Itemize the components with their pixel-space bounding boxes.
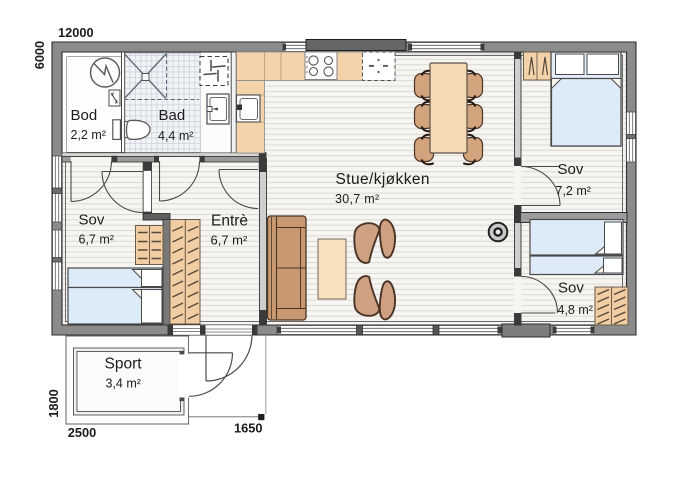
svg-text:Sov: Sov [558, 161, 584, 178]
svg-text:6,7 m²: 6,7 m² [211, 233, 249, 248]
svg-text:Bod: Bod [71, 107, 98, 124]
svg-text:30,7 m²: 30,7 m² [335, 192, 379, 206]
svg-text:4,4 m²: 4,4 m² [158, 129, 193, 143]
svg-text:1800: 1800 [46, 389, 61, 417]
svg-text:Sov: Sov [79, 212, 105, 229]
svg-text:12000: 12000 [58, 25, 94, 40]
svg-text:7,2 m²: 7,2 m² [556, 184, 591, 198]
svg-text:Entrè: Entrè [211, 213, 248, 230]
svg-text:3,4 m²: 3,4 m² [106, 377, 141, 391]
svg-text:1650: 1650 [234, 421, 262, 436]
svg-text:Stue/kjøkken: Stue/kjøkken [336, 171, 430, 188]
svg-text:Sov: Sov [558, 280, 584, 297]
svg-text:6,7 m²: 6,7 m² [79, 233, 114, 247]
svg-text:2,2 m²: 2,2 m² [71, 128, 106, 142]
svg-text:2500: 2500 [68, 425, 96, 440]
svg-text:Bad: Bad [159, 107, 186, 124]
svg-text:4,8 m²: 4,8 m² [558, 303, 593, 317]
svg-text:Sport: Sport [105, 356, 143, 373]
svg-text:6000: 6000 [32, 41, 47, 69]
